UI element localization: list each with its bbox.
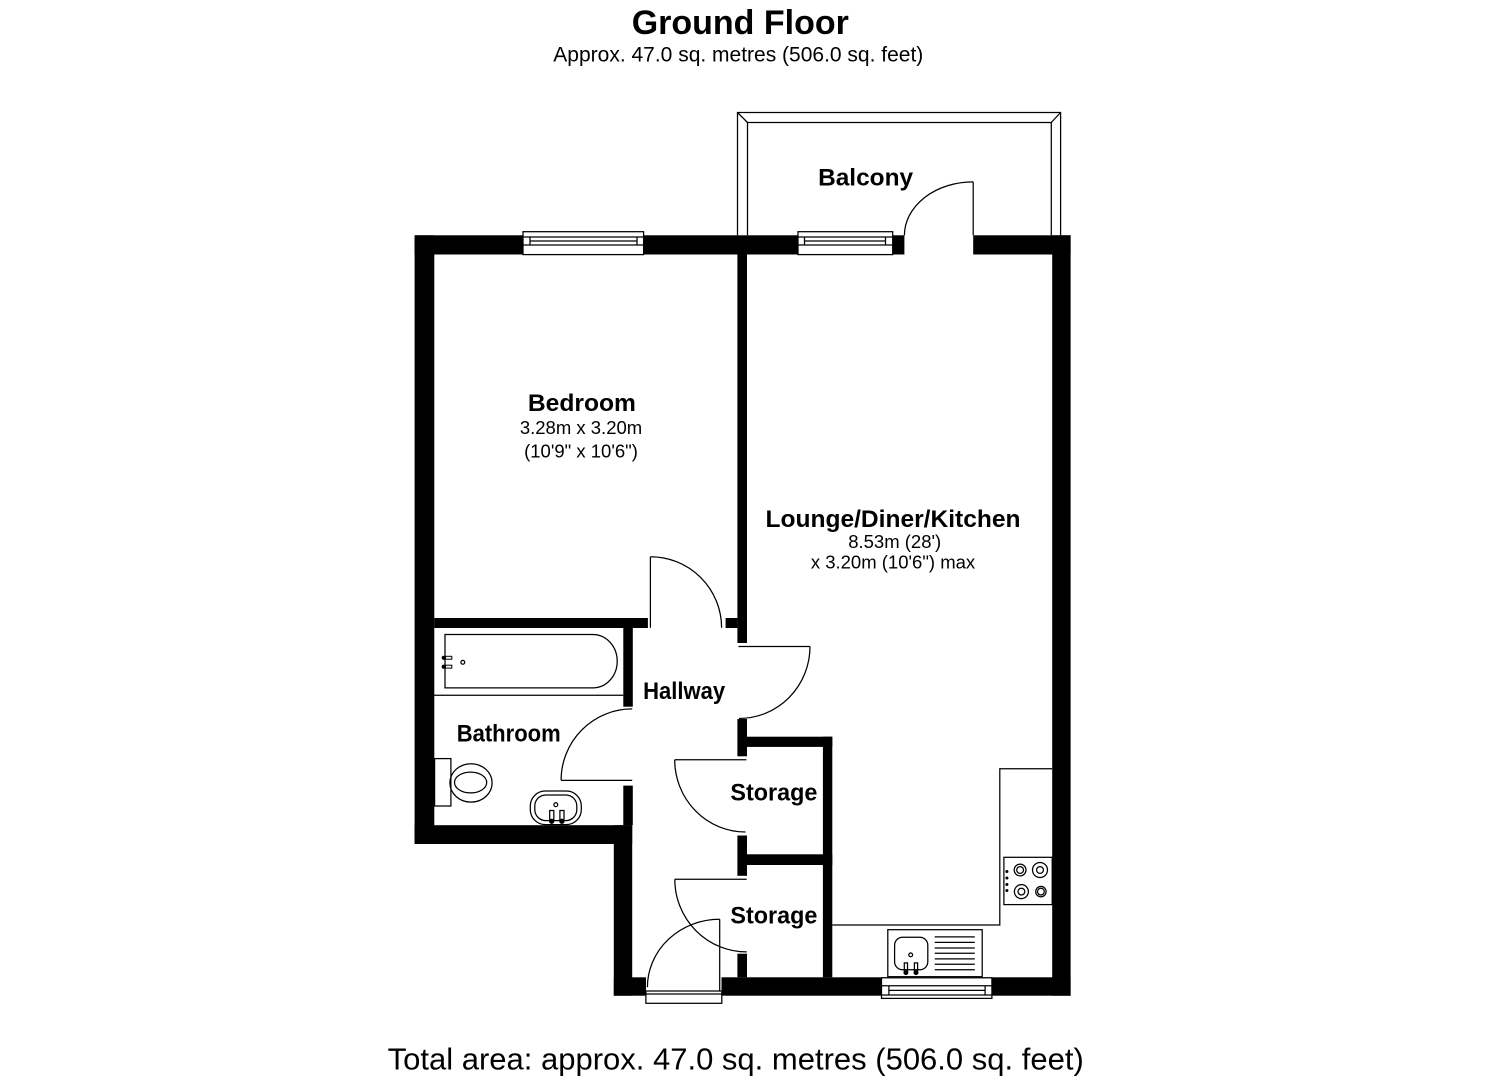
- svg-text:Total area: approx. 47.0 sq. m: Total area: approx. 47.0 sq. metres (506…: [388, 1042, 1084, 1077]
- svg-text:Balcony: Balcony: [818, 165, 914, 192]
- svg-text:Storage: Storage: [730, 780, 817, 807]
- svg-text:(10'9" x 10'6"): (10'9" x 10'6"): [524, 441, 638, 462]
- svg-text:Storage: Storage: [730, 903, 817, 930]
- svg-text:8.53m (28'): 8.53m (28'): [848, 531, 941, 552]
- svg-text:Hallway: Hallway: [643, 678, 726, 705]
- svg-text:x 3.20m (10'6") max: x 3.20m (10'6") max: [811, 551, 976, 572]
- svg-text:Ground Floor: Ground Floor: [632, 4, 849, 42]
- svg-text:Approx. 47.0 sq. metres (506.0: Approx. 47.0 sq. metres (506.0 sq. feet): [553, 44, 923, 67]
- svg-text:Bedroom: Bedroom: [528, 390, 636, 417]
- svg-text:Bathroom: Bathroom: [457, 721, 561, 748]
- svg-text:3.28m x 3.20m: 3.28m x 3.20m: [520, 417, 642, 438]
- svg-text:Lounge/Diner/Kitchen: Lounge/Diner/Kitchen: [766, 506, 1021, 533]
